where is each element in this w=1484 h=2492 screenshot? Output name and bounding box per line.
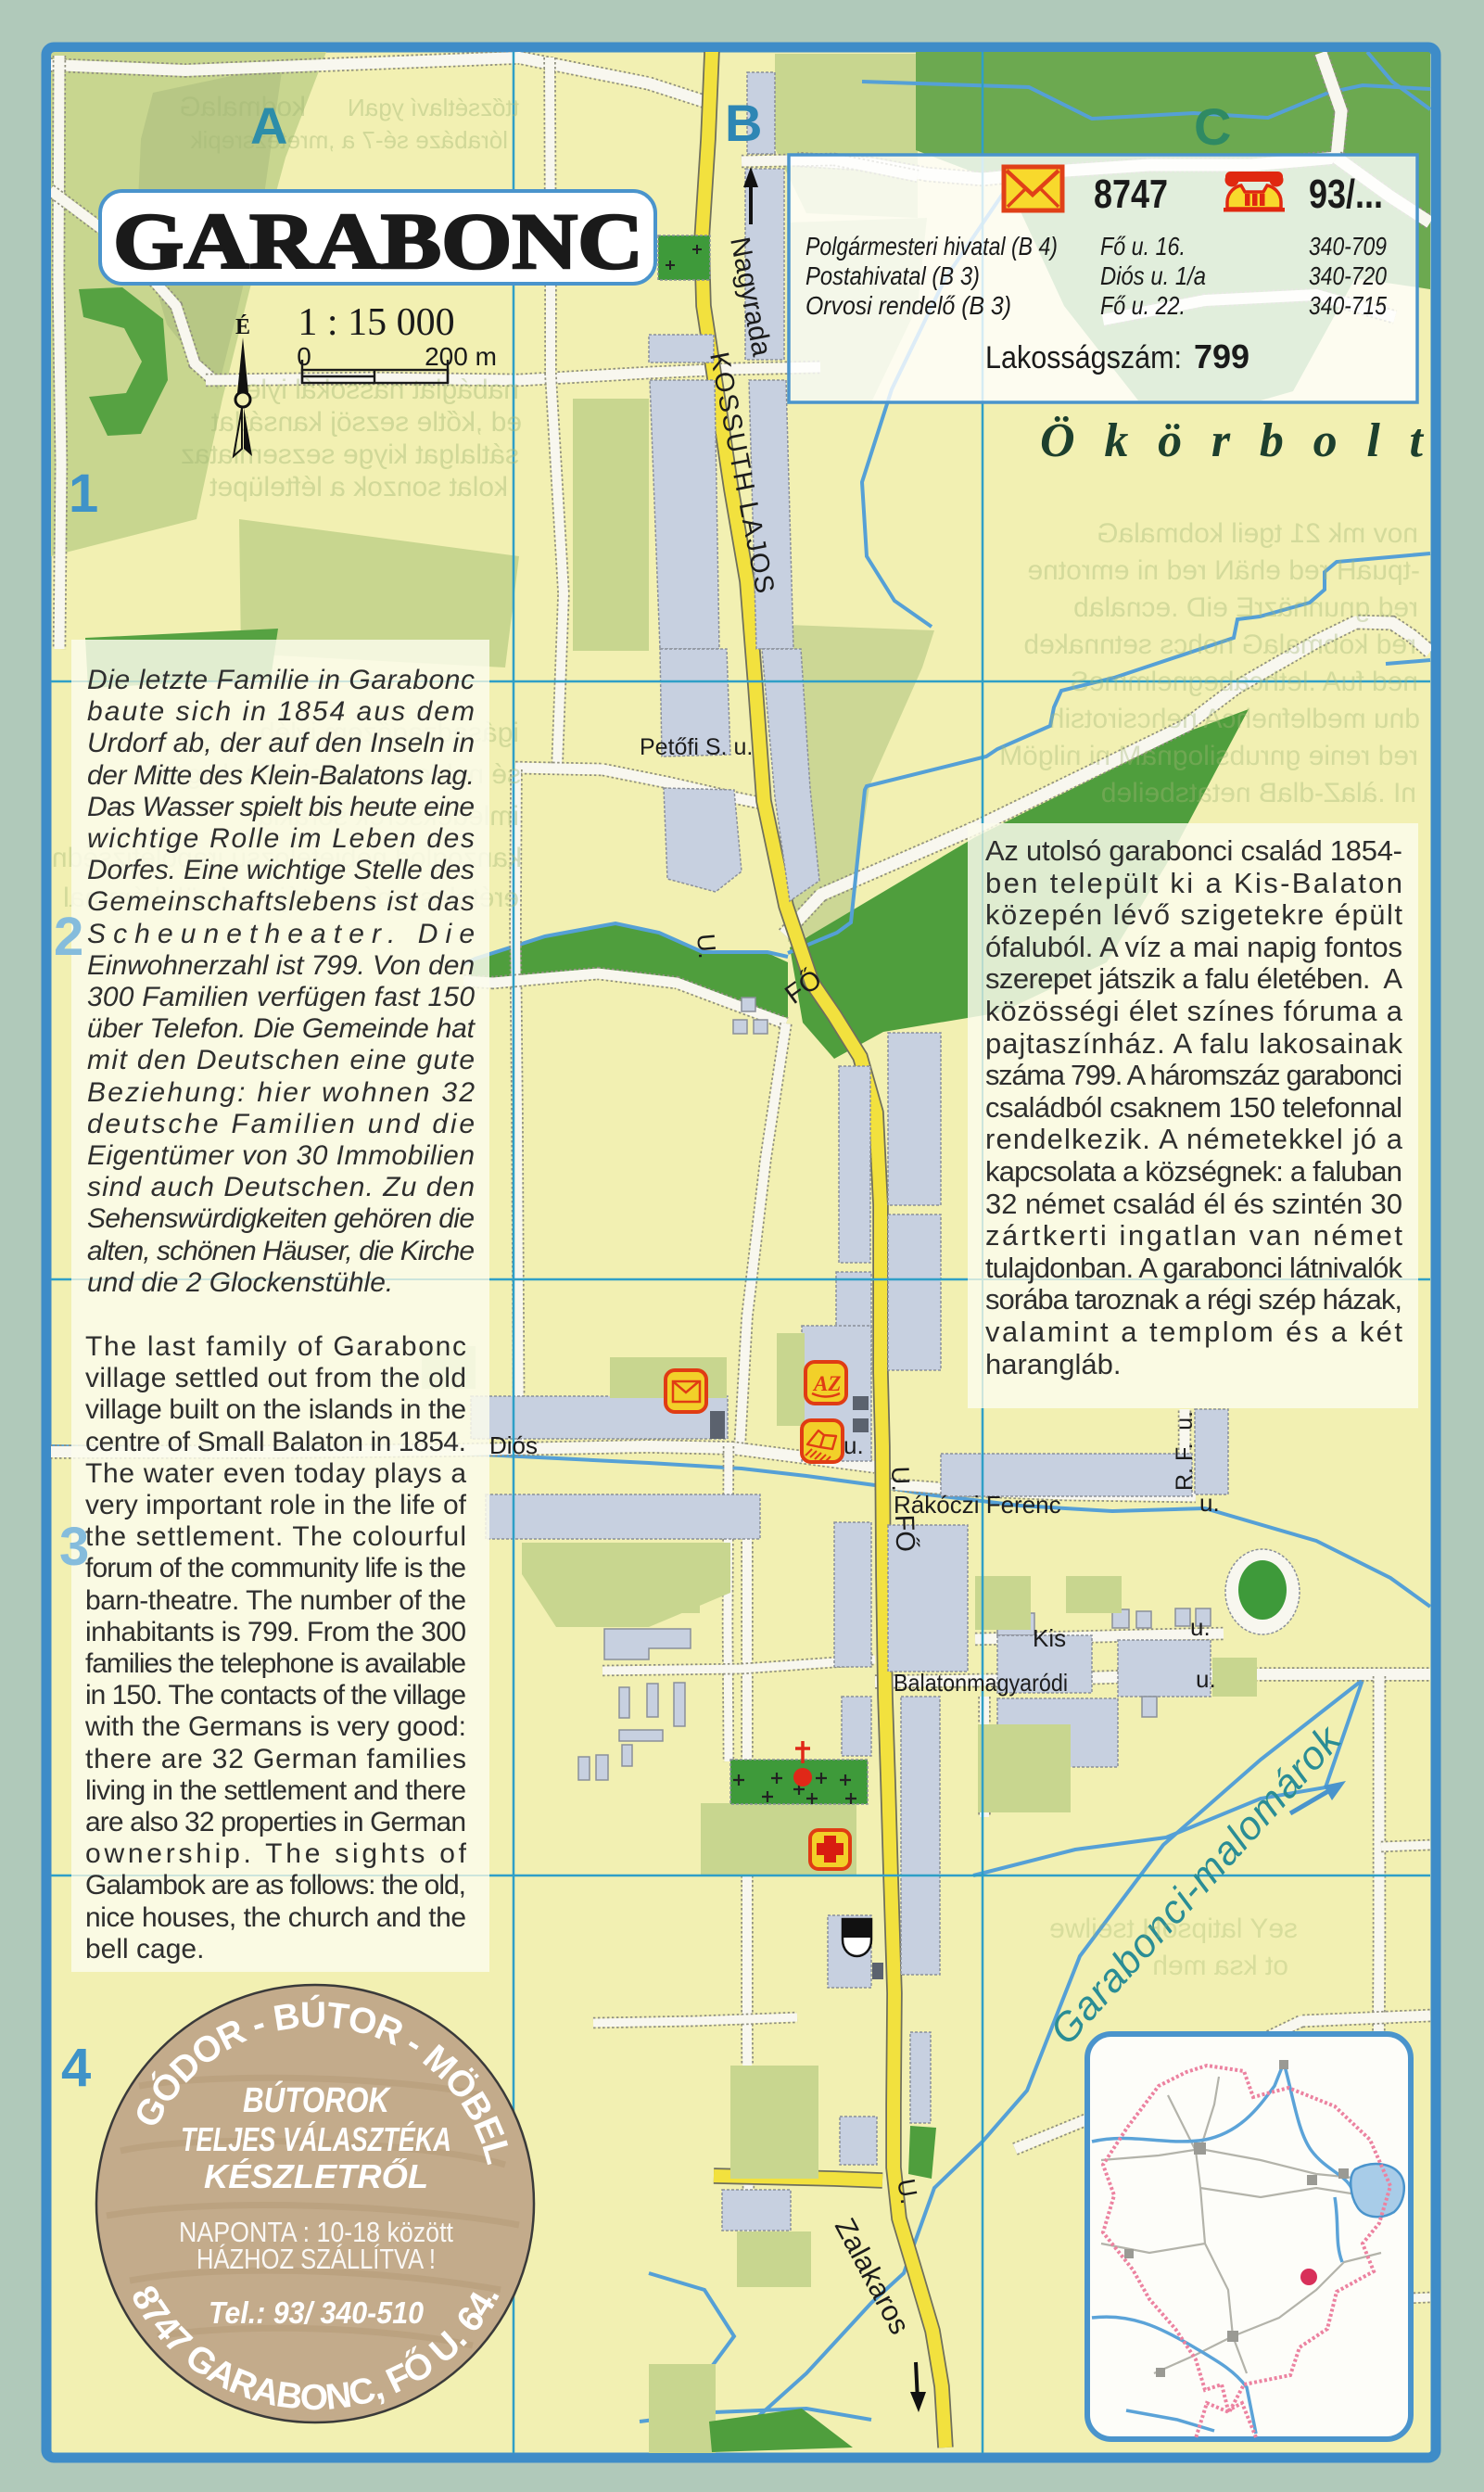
svg-text:Das Wasser spielt bis heute ei: Das Wasser spielt bis heute eine	[87, 792, 475, 822]
svg-text:alten, schönen Häuser, die Kir: alten, schönen Häuser, die Kirche	[87, 1236, 475, 1266]
svg-text:kapcsolata a községnek: a falu: kapcsolata a községnek: a faluban	[985, 1155, 1402, 1188]
svg-text:sorába taroznak a régi szép há: sorába taroznak a régi szép házak,	[985, 1283, 1402, 1316]
svg-text:FŐ: FŐ	[889, 1514, 920, 1552]
svg-text:The last family of Garabonc: The last family of Garabonc	[85, 1331, 466, 1362]
svg-text:Diós u. 1/a: Diós u. 1/a	[1100, 261, 1206, 290]
svg-text:harangláb.: harangláb.	[985, 1348, 1122, 1380]
svg-text:32 német család él és szintén: 32 német család él és szintén 30	[985, 1188, 1402, 1220]
svg-text:R. F. u.: R. F. u.	[1172, 1411, 1198, 1491]
svg-text:lórabáze sé-7 a ,mretezsrepik: lórabáze sé-7 a ,mretezsrepik	[190, 126, 508, 154]
svg-text:red kobmalaG nohcs setnnakeb: red kobmalaG nohcs setnnakeb	[1023, 629, 1416, 660]
svg-text:Rákóczi Ferenc: Rákóczi Ferenc	[894, 1491, 1061, 1519]
svg-text:Galambok are as follows: the o: Galambok are as follows: the old,	[85, 1870, 466, 1901]
svg-text:valamint a templom és a két: valamint a templom és a két	[985, 1316, 1402, 1348]
svg-text:HÁZHOZ SZÁLLÍTVA !: HÁZHOZ SZÁLLÍTVA !	[197, 2243, 436, 2275]
svg-text:1 : 15 000: 1 : 15 000	[298, 301, 454, 344]
svg-text:Polgármesteri hivatal (B 4): Polgármesteri hivatal (B 4)	[805, 232, 1058, 261]
svg-text:Einwohnerzahl ist 799. Von den: Einwohnerzahl ist 799. Von den	[87, 950, 475, 981]
svg-text:Sehenswürdigkeiten gehören die: Sehenswürdigkeiten gehören die	[87, 1203, 475, 1234]
svg-text:u.: u.	[1199, 1489, 1220, 1517]
svg-text:nI .àlaZ-dlaB netatsbeileb: nI .àlaZ-dlaB netatsbeileb	[1101, 778, 1416, 808]
svg-text:Die letzte Familie in Garabonc: Die letzte Familie in Garabonc	[87, 665, 475, 695]
svg-text:in 150. The contacts of the vi: in 150. The contacts of the village	[85, 1680, 466, 1710]
svg-text:2: 2	[54, 907, 83, 967]
svg-text:families the telephone is avai: families the telephone is available	[85, 1648, 466, 1679]
svg-text:u.: u.	[1196, 1665, 1216, 1693]
svg-text:there are 32 German families: there are 32 German families	[85, 1744, 466, 1774]
svg-text:Diós: Diós	[489, 1431, 538, 1459]
svg-text:zártkerti ingatlan van német: zártkerti ingatlan van német	[985, 1219, 1402, 1252]
svg-text:Eigentümer von 30 Immobilien: Eigentümer von 30 Immobilien	[87, 1140, 475, 1171]
svg-text:Postahivatal (B 3): Postahivatal (B 3)	[805, 261, 980, 290]
svg-text:Petőfi S. u.: Petőfi S. u.	[640, 734, 753, 760]
svg-text:799: 799	[1194, 337, 1249, 375]
svg-text:200 m: 200 m	[425, 342, 497, 371]
svg-text:93/...: 93/...	[1309, 172, 1383, 217]
svg-text:rendelkezik. A németekkel jó a: rendelkezik. A németekkel jó a	[985, 1123, 1403, 1155]
svg-text:very important role in the lif: very important role in the life of	[85, 1490, 467, 1520]
svg-text:forum of the community life is: forum of the community life is the	[85, 1553, 466, 1583]
svg-text:Kis: Kis	[1033, 1624, 1066, 1652]
svg-text:340-715: 340-715	[1309, 291, 1387, 320]
svg-text:und die 2 Glockenstühle.: und die 2 Glockenstühle.	[87, 1267, 393, 1298]
svg-text:living in the settlement and t: living in the settlement and there	[85, 1775, 466, 1806]
svg-text:TELJES VÁLASZTÉKA: TELJES VÁLASZTÉKA	[181, 2120, 451, 2158]
svg-text:sátlalgat kiyge sezsemlataz: sátlalgat kiyge sezsemlataz	[181, 439, 519, 470]
svg-text:U.: U.	[892, 2177, 923, 2206]
svg-text:kolat sonzok a léftelüpet: kolat sonzok a léftelüpet	[209, 472, 508, 502]
svg-text:nice houses, the church and th: nice houses, the church and the	[85, 1902, 466, 1933]
svg-text:baute sich in 1854 aus dem: baute sich in 1854 aus dem	[87, 696, 475, 727]
svg-text:Dorfes. Eine wichtige Stelle d: Dorfes. Eine wichtige Stelle des	[87, 855, 475, 885]
svg-text:A: A	[250, 96, 287, 155]
svg-text:közösségi élet színes fóruma a: közösségi élet színes fóruma a	[985, 995, 1403, 1027]
svg-text:Urdorf ab, der auf den Inseln: Urdorf ab, der auf den Inseln in	[87, 728, 475, 758]
svg-text:ed ,kőtle sezsöj kansátlat: ed ,kőtle sezsöj kansátlat	[210, 407, 522, 438]
svg-text:U.: U.	[886, 1466, 915, 1492]
svg-text:száma 799. A háromszáz garabon: száma 799. A háromszáz garabonci	[985, 1059, 1402, 1091]
svg-text:red gnunhäzrE eiD .ecnalab: red gnunhäzrE eiD .ecnalab	[1073, 592, 1418, 623]
svg-text:mit den Deutschen eine gute: mit den Deutschen eine gute	[87, 1045, 475, 1075]
svg-text:GARABONC: GARABONC	[113, 197, 643, 286]
svg-text:B: B	[725, 94, 762, 152]
svg-text:U.: U.	[691, 933, 721, 960]
svg-text:AZ: AZ	[812, 1372, 841, 1395]
svg-text:der Mitte des Klein-Balatons l: der Mitte des Klein-Balatons lag.	[87, 760, 475, 791]
svg-text:dnu medlefnehcA nehcsirotsih: dnu medlefnehcA nehcsirotsih	[1049, 704, 1420, 734]
svg-text:Gemeinschaftslebens ist das: Gemeinschaftslebens ist das	[87, 886, 475, 917]
svg-text:Tel.: 93/ 340-510: Tel.: 93/ 340-510	[209, 2295, 425, 2330]
svg-text:1: 1	[69, 464, 98, 524]
svg-text:barn-theatre. The number of th: barn-theatre. The number of the	[85, 1585, 466, 1616]
svg-text:inhabitants is 799. From the 3: inhabitants is 799. From the 300	[85, 1617, 466, 1647]
svg-text:KÉSZLETRŐL: KÉSZLETRŐL	[204, 2156, 428, 2195]
svg-text:village settled out from the o: village settled out from the old	[85, 1363, 466, 1393]
svg-text:seY latipsoH tseilwe: seY latipsoH tseilwe	[1049, 1913, 1298, 1944]
svg-text:0: 0	[297, 342, 311, 371]
svg-text:deutsche Familien und die: deutsche Familien und die	[87, 1109, 475, 1139]
svg-text:centre of Small Balaton in 185: centre of Small Balaton in 1854.	[85, 1427, 466, 1457]
svg-text:Balatonmagyaródi: Balatonmagyaródi	[894, 1669, 1068, 1697]
svg-text:red renie gnrubsilognaM ni nil: red renie gnrubsilognaM ni nilgöM	[999, 741, 1418, 771]
svg-text:The water even today plays a: The water even today plays a	[85, 1458, 466, 1489]
svg-text:szerepet játszik a falu életéb: szerepet játszik a falu életében. A	[985, 962, 1402, 995]
svg-text:BÚTOROK: BÚTOROK	[243, 2079, 391, 2120]
svg-text:with the Germans is very good:: with the Germans is very good:	[84, 1711, 466, 1742]
svg-text:über Telefon. Die Gemeinde hat: über Telefon. Die Gemeinde hat	[87, 1013, 476, 1044]
svg-text:Az utolsó garabonci család 185: Az utolsó garabonci család 1854-	[985, 834, 1402, 867]
svg-text:ófaluból. A víz a mai napig fo: ófaluból. A víz a mai napig fontos	[985, 931, 1402, 963]
svg-text:É: É	[235, 315, 250, 339]
svg-text:ot ksa meh: ot ksa meh	[1152, 1951, 1288, 1981]
svg-text:8747: 8747	[1094, 172, 1168, 217]
svg-text:4: 4	[61, 2038, 91, 2098]
svg-text:are also 32 properties in Germ: are also 32 properties in German	[85, 1807, 466, 1837]
svg-text:nov mk 21 tgeil kobmalaG: nov mk 21 tgeil kobmalaG	[1097, 518, 1418, 549]
svg-text:tulajdonban. A garabonci látni: tulajdonban. A garabonci látnivalók	[985, 1252, 1403, 1284]
svg-text:Orvosi rendelő (B 3): Orvosi rendelő (B 3)	[805, 291, 1011, 320]
svg-text:Fő u. 22.: Fő u. 22.	[1100, 291, 1186, 320]
svg-text:pajtaszínház. A falu lakosaina: pajtaszínház. A falu lakosainak	[985, 1027, 1403, 1060]
svg-text:nabáglat nassokál iylej: nabáglat nassokál iylej	[239, 375, 519, 405]
svg-text:Lakosságszám:: Lakosságszám:	[985, 340, 1182, 375]
svg-text:bell cage.: bell cage.	[85, 1934, 204, 1964]
svg-text:sind auch Deutschen. Zu den: sind auch Deutschen. Zu den	[87, 1172, 475, 1202]
svg-text:300 Familien verfügen fast 150: 300 Familien verfügen fast 150	[87, 982, 475, 1012]
svg-text:közepén lévő szigetekre épült: közepén lévő szigetekre épült	[985, 898, 1402, 931]
svg-text:ttőzsétlaví ygaN: ttőzsétlaví ygaN	[348, 94, 519, 121]
svg-text:-tpuaH red ehäN red ni emrotne: -tpuaH red ehäN red ni emrotne	[1027, 555, 1420, 586]
svg-text:ned fuA .lethcabegnelmmeS: ned fuA .lethcabegnelmmeS	[1071, 667, 1418, 697]
svg-text:családból csaknem 150 telefonn: családból csaknem 150 telefonnal	[985, 1091, 1402, 1124]
svg-text:Fő u. 16.: Fő u. 16.	[1100, 232, 1186, 261]
svg-text:village built on the islands i: village built on the islands in the	[85, 1394, 466, 1425]
svg-text:C: C	[1194, 97, 1231, 156]
svg-text:the settlement. The colourful: the settlement. The colourful	[85, 1521, 466, 1552]
svg-text:wichtige Rolle im Leben des: wichtige Rolle im Leben des	[87, 823, 475, 854]
svg-text:u.: u.	[843, 1431, 864, 1459]
svg-text:u.: u.	[1190, 1613, 1211, 1641]
svg-text:340-720: 340-720	[1309, 261, 1387, 290]
svg-text:340-709: 340-709	[1309, 232, 1387, 261]
